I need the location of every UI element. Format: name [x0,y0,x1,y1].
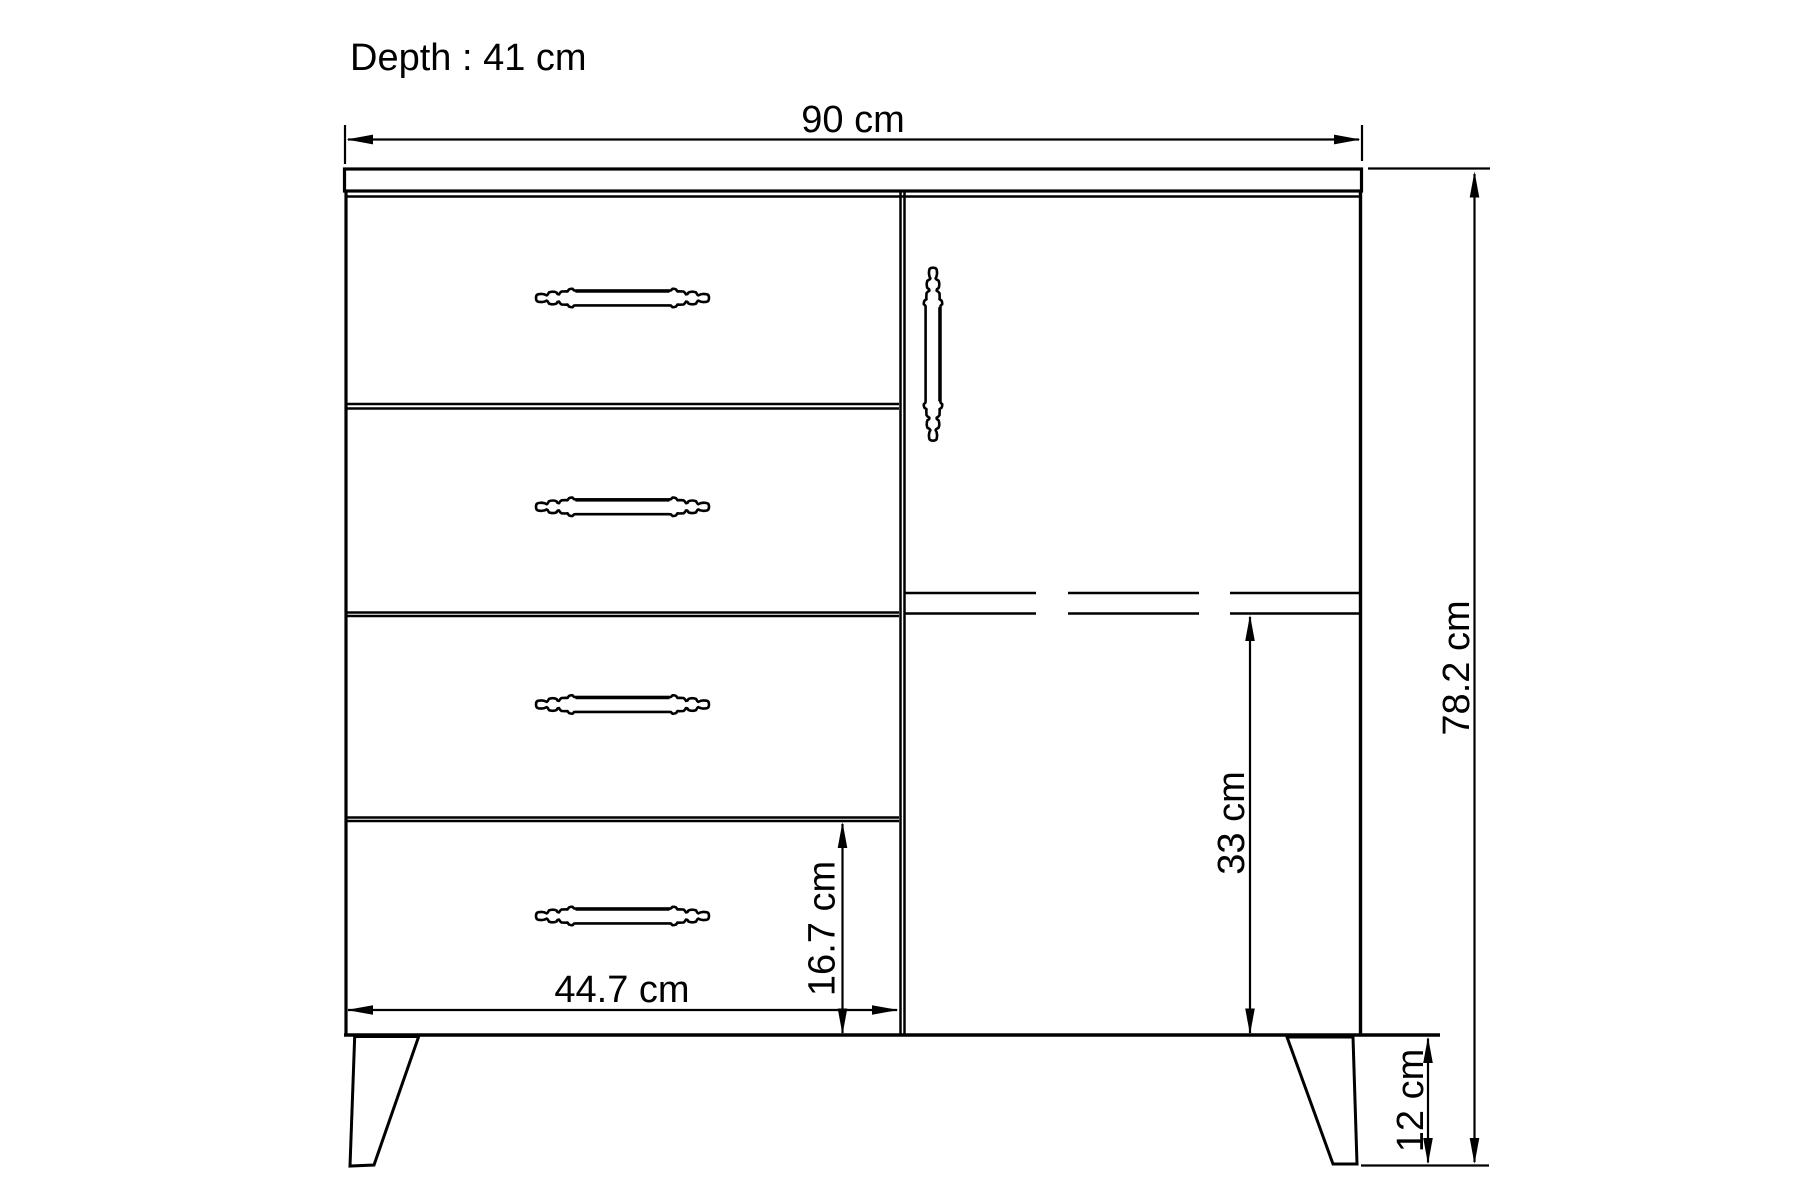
svg-text:33 cm: 33 cm [1211,771,1253,874]
svg-text:44.7 cm: 44.7 cm [554,969,689,1011]
svg-text:90 cm: 90 cm [801,99,904,141]
svg-text:Depth : 41 cm: Depth : 41 cm [350,37,587,79]
svg-text:16.7 cm: 16.7 cm [802,861,844,996]
svg-text:12 cm: 12 cm [1390,1049,1432,1152]
svg-text:78.2 cm: 78.2 cm [1436,600,1478,735]
